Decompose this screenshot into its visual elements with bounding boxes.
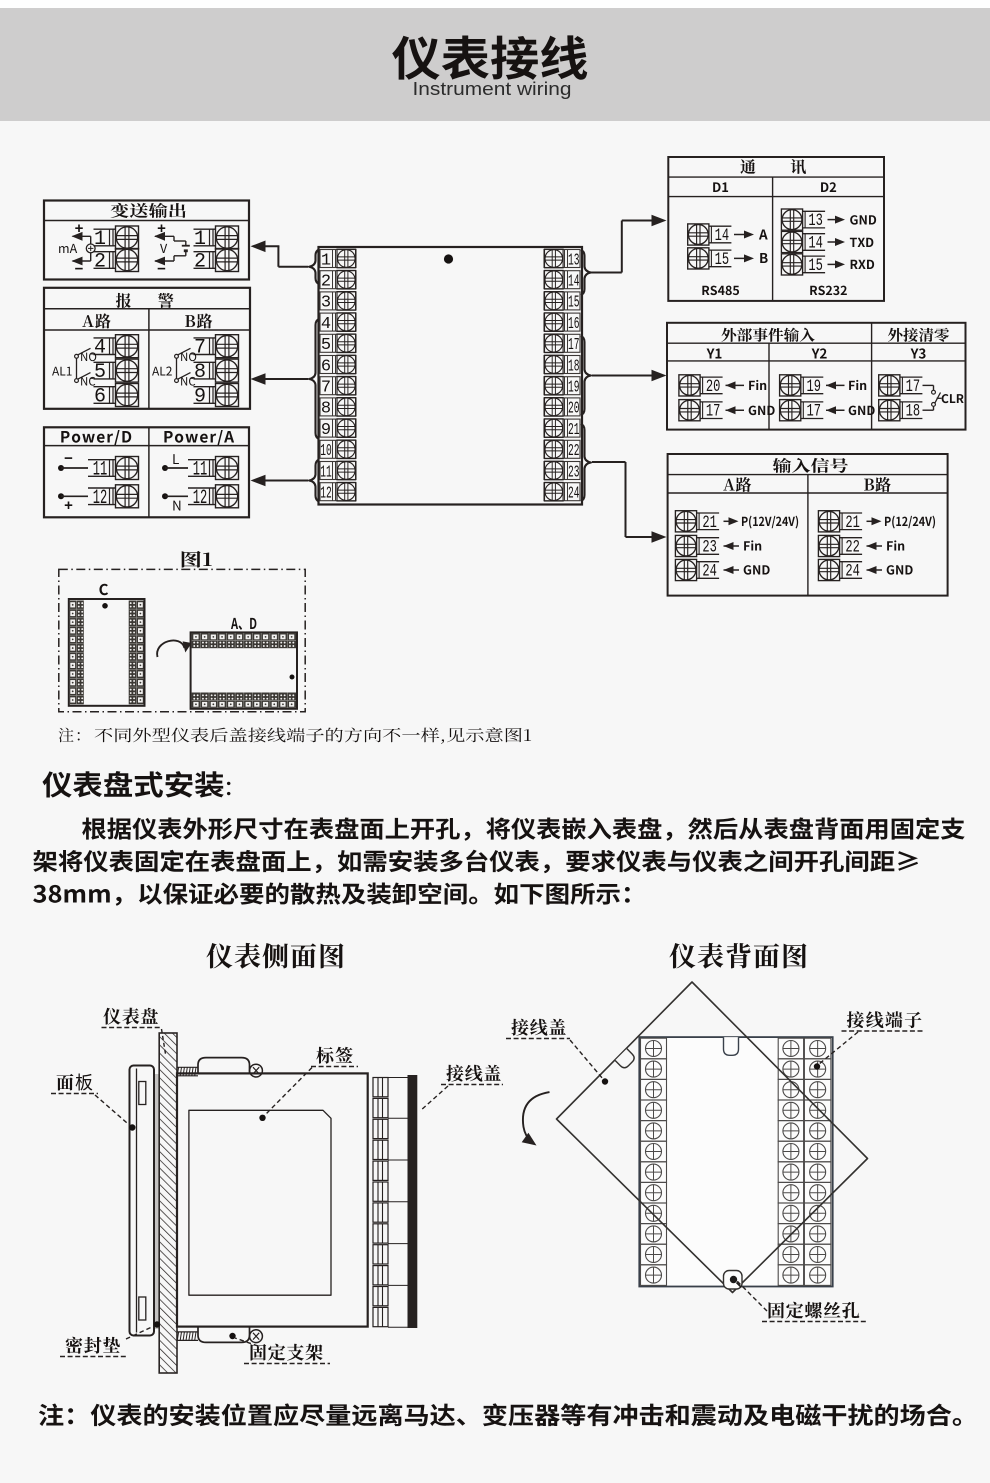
svg-text:RS485: RS485 — [701, 280, 739, 299]
svg-text:D1: D1 — [712, 177, 729, 196]
svg-text:Fin: Fin — [743, 536, 762, 555]
svg-text:接线盖: 接线盖 — [446, 1060, 502, 1086]
svg-text:19: 19 — [568, 379, 580, 398]
svg-text:Fin: Fin — [748, 375, 767, 394]
svg-text:Fin: Fin — [886, 536, 905, 555]
svg-text:14: 14 — [808, 234, 823, 254]
svg-text:A路: A路 — [82, 309, 112, 332]
svg-text:GND: GND — [748, 400, 775, 419]
svg-text:图1: 图1 — [180, 546, 213, 572]
svg-text:C: C — [99, 579, 109, 600]
svg-text:仪表盘式安装:: 仪表盘式安装: — [42, 764, 233, 804]
svg-text:P(12V/24V): P(12V/24V) — [741, 511, 799, 530]
svg-text:外部事件输入: 外部事件输入 — [721, 324, 815, 345]
svg-text:−: − — [157, 261, 166, 278]
svg-text:Y1: Y1 — [706, 342, 723, 362]
svg-text:通: 通 — [740, 155, 756, 178]
svg-text:架将仪表固定在表盘面上，如需安装多台仪表，要求仪表与仪表之间: 架将仪表固定在表盘面上，如需安装多台仪表，要求仪表与仪表之间开孔间距≥ — [33, 843, 921, 877]
svg-text:NO: NO — [180, 349, 197, 365]
svg-text:mA: mA — [58, 238, 78, 257]
svg-text:密封垫: 密封垫 — [65, 1332, 121, 1358]
svg-text:GND: GND — [848, 400, 875, 419]
svg-text:B路: B路 — [184, 309, 213, 332]
svg-text:仪表盘: 仪表盘 — [103, 1003, 159, 1029]
svg-text:RXD: RXD — [850, 254, 875, 273]
svg-text:13: 13 — [568, 251, 580, 270]
svg-text:14: 14 — [568, 273, 580, 292]
svg-text:13: 13 — [808, 211, 823, 231]
svg-text:1: 1 — [94, 228, 106, 251]
svg-text:仪表背面图: 仪表背面图 — [669, 935, 809, 974]
svg-text:23: 23 — [702, 538, 717, 558]
svg-text:警: 警 — [158, 288, 174, 311]
svg-text:18: 18 — [568, 357, 580, 376]
svg-text:−: − — [75, 261, 84, 278]
svg-text:根据仪表外形尺寸在表盘面上开孔，将仪表嵌入表盘，然后从表盘背: 根据仪表外形尺寸在表盘面上开孔，将仪表嵌入表盘，然后从表盘背面用固定支 — [82, 811, 966, 845]
svg-text:+: + — [75, 220, 84, 237]
svg-text:注：仪表的安装位置应尽量远离马达、变压器等有冲击和震动及电磁: 注：仪表的安装位置应尽量远离马达、变压器等有冲击和震动及电磁干扰的场合。 — [38, 1396, 978, 1431]
svg-text:17: 17 — [568, 336, 580, 355]
svg-text:9: 9 — [194, 386, 206, 409]
svg-text:NC: NC — [180, 373, 196, 389]
svg-text:变送输出: 变送输出 — [110, 198, 187, 221]
svg-text:16: 16 — [568, 315, 580, 334]
svg-text:P(12/24V): P(12/24V) — [884, 511, 936, 530]
svg-text:15: 15 — [568, 294, 580, 313]
svg-text:6: 6 — [94, 386, 106, 409]
svg-text:−: − — [64, 450, 73, 467]
svg-text:TXD: TXD — [850, 232, 875, 251]
svg-text:Fin: Fin — [848, 375, 867, 394]
svg-text:15: 15 — [715, 250, 730, 270]
svg-text:V: V — [160, 238, 168, 257]
svg-text:1: 1 — [194, 228, 206, 251]
svg-text:38mm，以保证必要的散热及装卸空间。如下图所示：: 38mm，以保证必要的散热及装卸空间。如下图所示： — [33, 876, 647, 910]
svg-text:仪表侧面图: 仪表侧面图 — [206, 935, 346, 974]
svg-text:8: 8 — [321, 400, 331, 419]
svg-text:17: 17 — [807, 402, 822, 422]
svg-text:14: 14 — [715, 226, 730, 246]
svg-text:2: 2 — [194, 251, 206, 274]
svg-text:21: 21 — [702, 513, 717, 533]
svg-text:A: A — [758, 223, 768, 243]
svg-text:18: 18 — [906, 402, 921, 422]
svg-text:12: 12 — [193, 487, 208, 510]
svg-text:B路: B路 — [863, 473, 891, 496]
svg-text:20: 20 — [568, 400, 580, 419]
svg-text:Y3: Y3 — [910, 342, 927, 362]
svg-text:1: 1 — [321, 251, 331, 270]
svg-text:7: 7 — [321, 379, 331, 398]
svg-text:AL2: AL2 — [152, 363, 173, 380]
svg-text:12: 12 — [320, 485, 332, 504]
svg-text:GND: GND — [850, 209, 877, 228]
svg-text:NO: NO — [80, 349, 97, 365]
svg-text:L: L — [172, 448, 179, 468]
svg-text:标签: 标签 — [316, 1042, 354, 1068]
svg-text:12: 12 — [93, 487, 108, 510]
svg-text:GND: GND — [743, 560, 770, 579]
svg-text:21: 21 — [568, 421, 580, 440]
svg-text:GND: GND — [886, 560, 913, 579]
svg-text:Power/A: Power/A — [163, 426, 235, 448]
svg-text:A、D: A、D — [230, 613, 257, 634]
svg-text:4: 4 — [321, 315, 331, 334]
svg-text:5: 5 — [321, 336, 331, 355]
svg-text:Power/D: Power/D — [60, 426, 133, 448]
svg-text:11: 11 — [93, 459, 108, 482]
svg-text:CLR: CLR — [941, 390, 964, 407]
svg-text:20: 20 — [706, 377, 721, 397]
svg-text:19: 19 — [807, 377, 822, 397]
svg-text:11: 11 — [193, 459, 208, 482]
svg-text:17: 17 — [706, 402, 721, 422]
svg-text:17: 17 — [906, 377, 921, 397]
svg-text:+: + — [157, 220, 166, 237]
svg-text:Y2: Y2 — [811, 342, 828, 362]
svg-text:24: 24 — [845, 562, 860, 582]
svg-text:报: 报 — [116, 288, 132, 311]
svg-text:2: 2 — [94, 251, 106, 274]
svg-text:21: 21 — [845, 513, 860, 533]
svg-text:A路: A路 — [723, 473, 752, 496]
svg-text:固定螺丝孔: 固定螺丝孔 — [767, 1297, 861, 1323]
svg-text:11: 11 — [320, 463, 332, 482]
svg-text:AL1: AL1 — [52, 363, 72, 380]
svg-text:+: + — [64, 497, 73, 514]
svg-text:不同外型仪表后盖接线端子的方向不一样,见示意图1: 不同外型仪表后盖接线端子的方向不一样,见示意图1 — [94, 723, 532, 746]
svg-text:2: 2 — [321, 273, 331, 292]
svg-text:Instrument wiring: Instrument wiring — [413, 78, 572, 99]
svg-text:接线端子: 接线端子 — [847, 1007, 924, 1033]
svg-text:23: 23 — [568, 463, 580, 482]
svg-text:6: 6 — [321, 357, 331, 376]
svg-text:22: 22 — [568, 442, 580, 461]
svg-text:N: N — [172, 495, 182, 515]
svg-text:D2: D2 — [820, 177, 837, 196]
svg-text:24: 24 — [568, 485, 580, 504]
svg-text:3: 3 — [321, 294, 331, 313]
svg-text:NC: NC — [80, 373, 96, 389]
svg-text:注：: 注： — [58, 723, 92, 746]
svg-text:9: 9 — [321, 421, 331, 440]
svg-text:接线盖: 接线盖 — [511, 1014, 567, 1040]
svg-text:面板: 面板 — [56, 1069, 94, 1095]
svg-text:输入信号: 输入信号 — [773, 453, 849, 476]
svg-text:B: B — [759, 247, 768, 267]
svg-text:24: 24 — [702, 562, 717, 582]
svg-text:讯: 讯 — [790, 155, 806, 178]
svg-text:固定支架: 固定支架 — [249, 1339, 324, 1365]
svg-text:RS232: RS232 — [809, 280, 847, 299]
svg-text:22: 22 — [845, 538, 860, 558]
svg-text:10: 10 — [320, 442, 332, 461]
svg-text:15: 15 — [808, 256, 823, 276]
